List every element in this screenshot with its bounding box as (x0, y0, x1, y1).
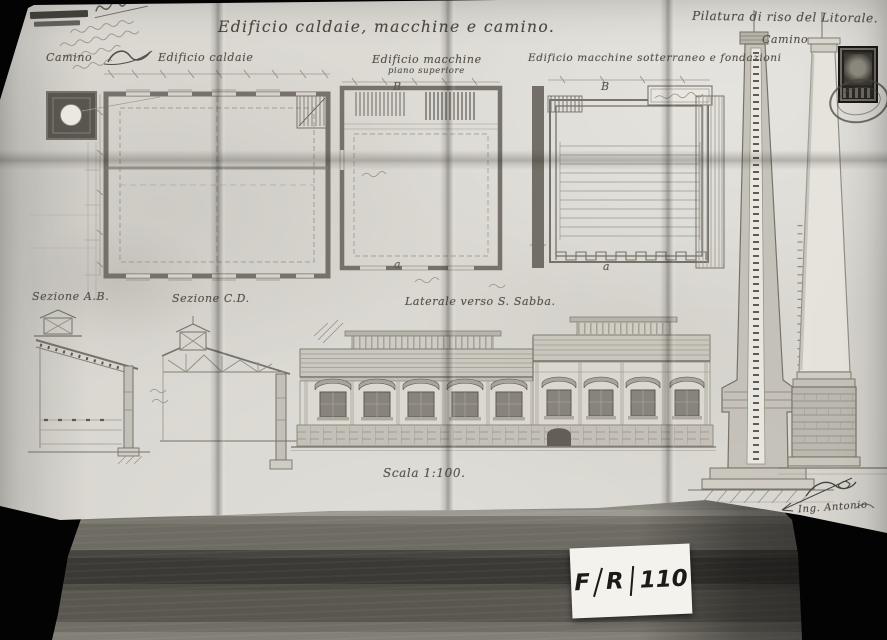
sheet-title: Edificio caldaie, macchine e camino. (218, 18, 553, 36)
sotterraneo-plan (532, 76, 724, 268)
sezione-ab-drawing (28, 310, 150, 464)
marker-b-left: B (393, 80, 402, 93)
ink-flourish (104, 51, 152, 64)
marker-b-right: B (601, 80, 610, 93)
archive-card: F R 110 (570, 544, 693, 619)
archive-code-part: 110 (639, 566, 688, 594)
label-facciata: Laterale verso S. Sabba. (405, 295, 556, 308)
marker-a-right: a (603, 260, 610, 273)
slash-divider-icon (630, 566, 634, 596)
archival-photograph: Edificio caldaie, macchine e camino. Cam… (0, 0, 887, 640)
label-scala: Scala 1:100. (383, 466, 466, 480)
label-piano-superiore: piano superiore (388, 66, 465, 76)
label-sezione-ab: Sezione A.B. (32, 290, 109, 303)
archive-code-part: R (605, 568, 624, 595)
label-edificio-macchine-sotterraneo: Edificio macchine sotterraneo e fondazio… (528, 52, 782, 64)
edificio-macchine-plan (342, 78, 546, 288)
archive-code-part: F (574, 570, 591, 597)
label-pilatura: Pilatura di riso del Litorale. (692, 9, 878, 26)
marker-a-left: a (394, 258, 401, 271)
slash-divider-icon (593, 568, 603, 597)
label-edificio-caldaie: Edificio caldaie (158, 51, 253, 64)
label-edificio-macchine: Edificio macchine (372, 53, 482, 66)
label-camino-elevation: Camino (762, 33, 808, 46)
sezione-cd-drawing (150, 316, 298, 469)
label-sezione-cd: Sezione C.D. (172, 292, 250, 305)
camino-plan (30, 92, 160, 300)
label-camino-plan: Camino (46, 51, 92, 64)
facade-drawing (291, 317, 716, 451)
